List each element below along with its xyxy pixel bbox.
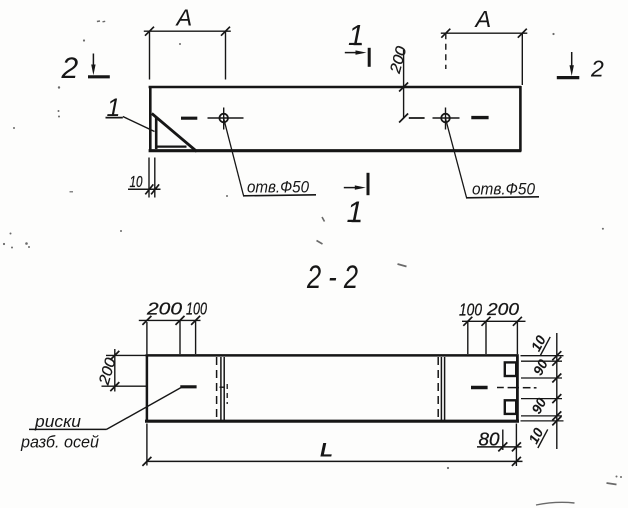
svg-text:L: L (320, 441, 333, 462)
svg-text:200: 200 (486, 299, 519, 319)
svg-text:10: 10 (130, 174, 143, 191)
svg-text:отв.Ф50: отв.Ф50 (472, 181, 536, 199)
svg-text:1: 1 (348, 20, 364, 52)
svg-text:2: 2 (590, 56, 604, 82)
svg-text:A: A (474, 6, 492, 32)
svg-text:100: 100 (186, 299, 207, 319)
svg-text:1: 1 (347, 196, 364, 229)
svg-text:10: 10 (528, 332, 550, 353)
svg-text:200: 200 (387, 44, 411, 76)
svg-text:90: 90 (530, 356, 552, 377)
svg-text:разб. осей: разб. осей (20, 433, 99, 452)
svg-text:отв.Ф50: отв.Ф50 (247, 179, 310, 197)
svg-text:риски: риски (34, 412, 82, 431)
svg-text:200: 200 (146, 299, 183, 319)
svg-text:100: 100 (459, 300, 482, 320)
svg-text:2: 2 (61, 52, 79, 85)
svg-text:10: 10 (525, 425, 547, 446)
svg-text:200: 200 (96, 355, 120, 387)
svg-text:2 - 2: 2 - 2 (306, 259, 358, 295)
svg-text:A: A (175, 5, 193, 31)
